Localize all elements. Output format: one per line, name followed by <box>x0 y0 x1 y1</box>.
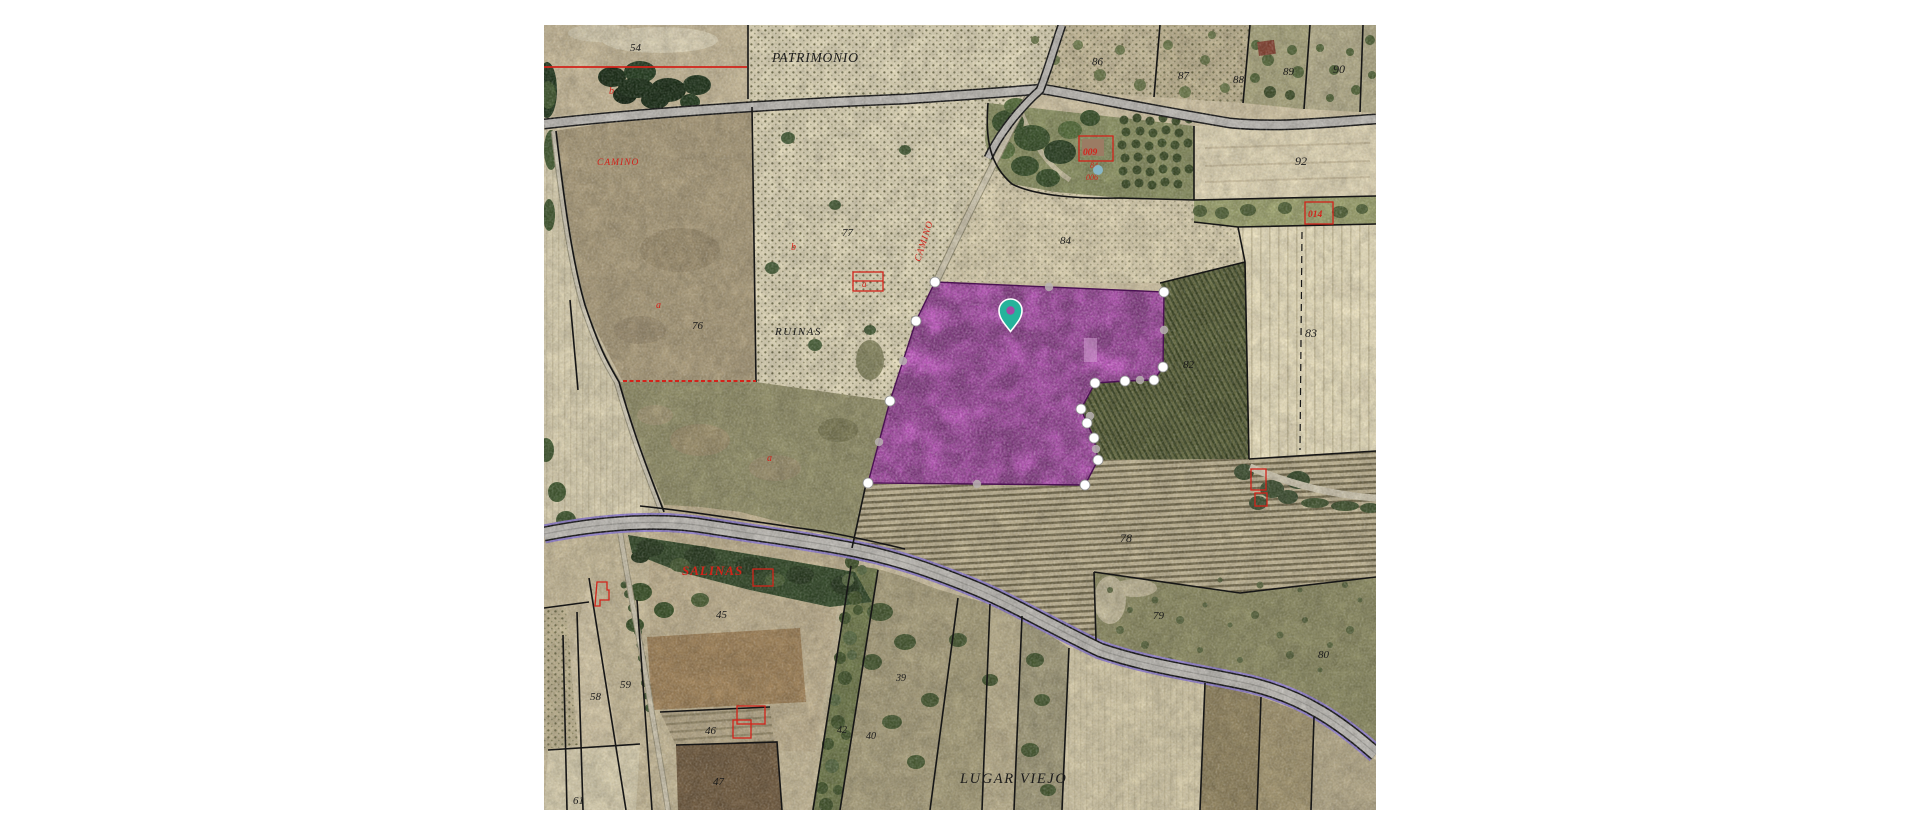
svg-text:78: 78 <box>1120 531 1132 545</box>
svg-text:42: 42 <box>837 725 847 736</box>
svg-text:SALINAS: SALINAS <box>682 563 743 578</box>
svg-text:a: a <box>767 453 772 464</box>
svg-text:RUINAS: RUINAS <box>774 326 822 338</box>
svg-text:58: 58 <box>590 691 602 703</box>
svg-text:LUGAR VIEJO: LUGAR VIEJO <box>959 771 1067 787</box>
svg-text:76: 76 <box>692 320 704 332</box>
svg-text:40: 40 <box>866 731 876 742</box>
svg-text:77: 77 <box>842 227 854 239</box>
svg-text:82: 82 <box>1183 359 1195 371</box>
svg-text:b: b <box>609 86 614 97</box>
svg-text:92: 92 <box>1295 154 1307 168</box>
svg-text:61: 61 <box>573 795 584 807</box>
svg-text:PATRIMONIO: PATRIMONIO <box>771 50 859 65</box>
svg-text:a: a <box>656 300 661 311</box>
svg-text:90: 90 <box>1333 62 1345 76</box>
svg-text:88: 88 <box>1233 74 1245 86</box>
svg-text:79: 79 <box>1153 610 1165 622</box>
svg-text:80: 80 <box>1318 649 1330 661</box>
svg-text:CAMINO: CAMINO <box>597 158 639 168</box>
svg-text:84: 84 <box>1060 235 1072 247</box>
svg-text:014: 014 <box>1308 210 1323 220</box>
svg-text:a: a <box>862 279 867 289</box>
svg-text:009: 009 <box>1083 148 1098 158</box>
svg-text:86: 86 <box>1092 56 1104 68</box>
svg-text:45: 45 <box>716 609 728 621</box>
svg-text:47: 47 <box>713 776 725 788</box>
svg-text:59: 59 <box>620 679 632 691</box>
svg-text:46: 46 <box>705 725 717 737</box>
svg-text:b: b <box>791 242 796 253</box>
svg-text:83: 83 <box>1305 326 1317 340</box>
svg-text:39: 39 <box>895 673 906 684</box>
svg-text:87: 87 <box>1178 70 1190 82</box>
svg-text:54: 54 <box>630 42 642 54</box>
svg-text:89: 89 <box>1283 66 1295 78</box>
